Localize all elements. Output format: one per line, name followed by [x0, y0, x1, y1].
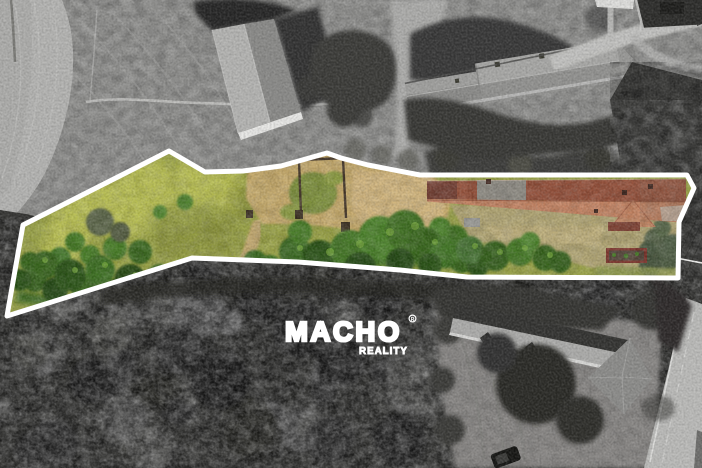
svg-text:R: R [411, 317, 415, 323]
svg-text:REALITY: REALITY [359, 346, 408, 357]
svg-text:MACHO: MACHO [285, 316, 402, 347]
